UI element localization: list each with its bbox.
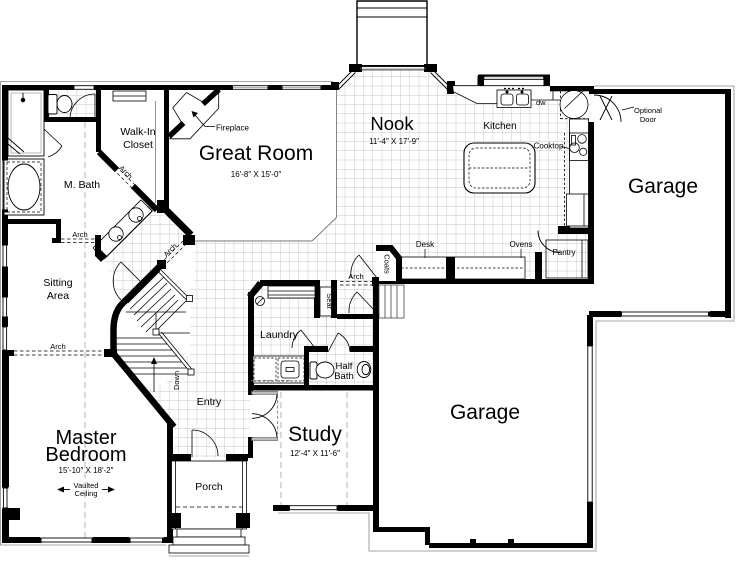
svg-text:dw: dw (536, 98, 546, 107)
svg-text:Closet: Closet (123, 139, 153, 151)
svg-text:16′-8″ X 15′-0″: 16′-8″ X 15′-0″ (231, 170, 282, 179)
svg-text:Down: Down (172, 371, 181, 390)
svg-text:Seat: Seat (325, 293, 334, 309)
svg-text:M. Bath: M. Bath (64, 179, 100, 191)
svg-text:Walk-In: Walk-In (120, 126, 155, 138)
svg-text:Arch: Arch (72, 230, 87, 239)
svg-text:Desk: Desk (416, 240, 435, 249)
svg-text:Fireplace: Fireplace (216, 124, 249, 133)
svg-text:Optional: Optional (634, 106, 662, 115)
svg-text:Ceiling: Ceiling (75, 489, 98, 498)
svg-text:12′-4″ X 11′-6″: 12′-4″ X 11′-6″ (290, 449, 340, 458)
svg-text:Ovens: Ovens (509, 240, 532, 249)
svg-text:Garage: Garage (628, 175, 698, 198)
svg-text:Cooktop: Cooktop (534, 142, 564, 151)
svg-text:Bath: Bath (334, 371, 354, 382)
svg-text:11′-4″ X 17′-9″: 11′-4″ X 17′-9″ (369, 137, 419, 146)
svg-text:Laundry: Laundry (260, 329, 299, 341)
svg-text:Arch: Arch (50, 342, 65, 351)
svg-text:Great Room: Great Room (199, 142, 313, 165)
svg-text:Entry: Entry (197, 396, 222, 408)
svg-text:Garage: Garage (450, 401, 520, 424)
svg-text:Coats: Coats (383, 254, 392, 274)
svg-text:Bedroom: Bedroom (45, 444, 126, 466)
svg-text:Door: Door (640, 115, 657, 124)
svg-text:Sitting: Sitting (43, 277, 72, 289)
svg-text:15′-10″ X 18′-2″: 15′-10″ X 18′-2″ (59, 466, 114, 475)
svg-text:Study: Study (288, 423, 342, 446)
svg-text:Nook: Nook (370, 113, 414, 134)
svg-text:Porch: Porch (195, 481, 223, 493)
svg-text:Kitchen: Kitchen (483, 121, 516, 132)
svg-text:Arch: Arch (348, 272, 363, 281)
svg-text:Area: Area (47, 290, 69, 302)
svg-text:Pantry: Pantry (552, 248, 575, 257)
